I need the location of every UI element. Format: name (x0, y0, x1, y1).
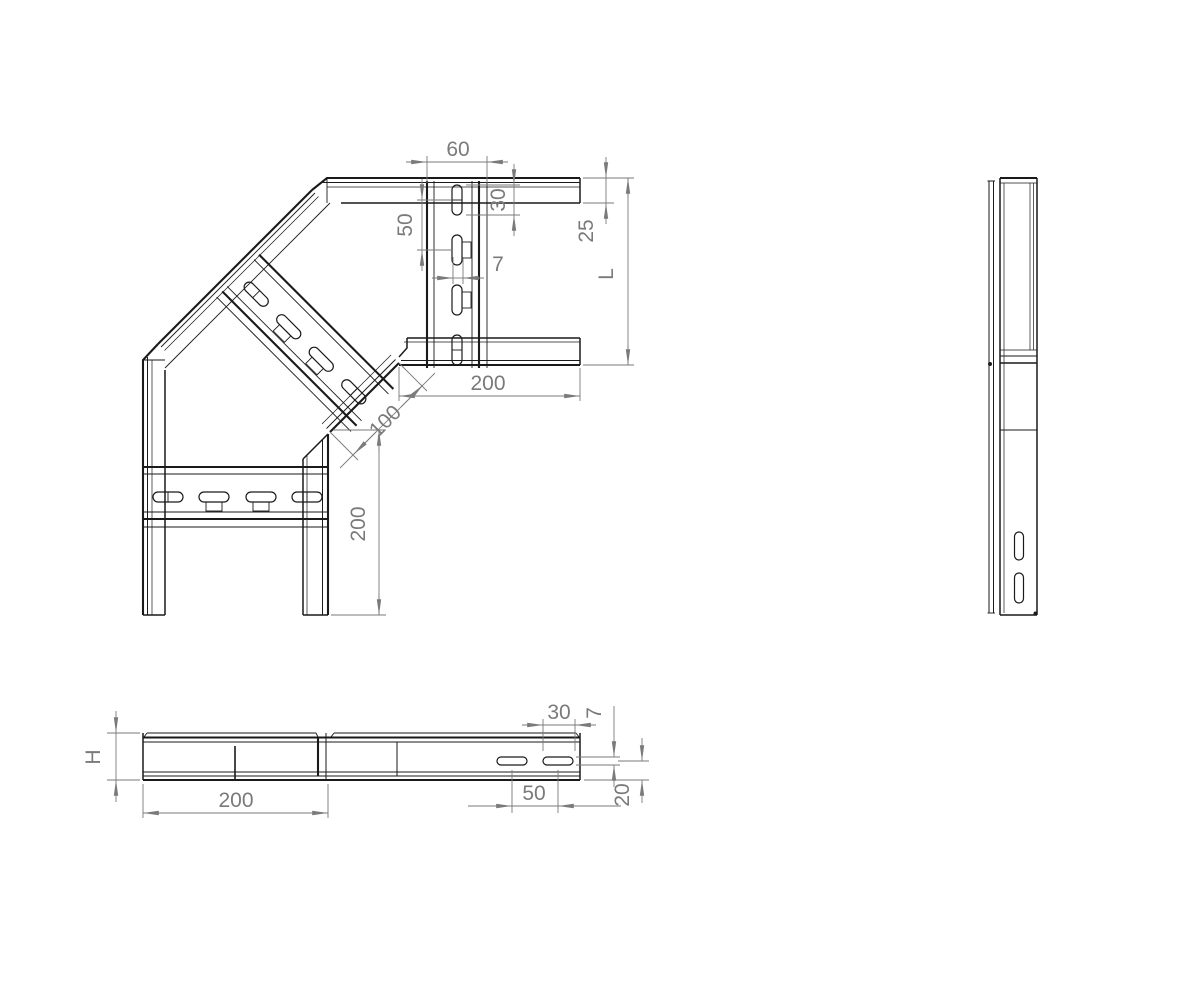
dim-200-arm-label: 200 (470, 372, 505, 395)
dim-50: 50 (394, 179, 452, 271)
dim-200-leg: 200 (331, 430, 386, 615)
plan-top-rail (312, 178, 580, 203)
plan-dimensions: 60 30 50 (330, 138, 634, 615)
front-view: H 200 30 (82, 701, 649, 818)
dim-50-front-label: 50 (522, 782, 545, 805)
rung-horizontal-arm (427, 181, 487, 368)
dim-200-arm: 200 (399, 367, 580, 401)
dim-7-front-label: 7 (583, 707, 606, 719)
front-slot-2 (543, 757, 573, 765)
dim-50-label: 50 (394, 213, 417, 236)
rung-diagonal (217, 255, 394, 432)
side-slot-2 (1015, 573, 1024, 603)
dim-60: 60 (406, 138, 508, 183)
plan-right-rail (303, 434, 328, 615)
cad-drawing: 60 30 50 (0, 0, 1200, 1000)
side-geometry (988, 178, 1038, 616)
dim-H: H (82, 711, 140, 802)
dim-7-label: 7 (492, 253, 504, 276)
dim-200-front-label: 200 (218, 789, 253, 812)
dim-7-front: 7 (576, 706, 620, 787)
front-slot-1 (497, 757, 527, 765)
plan-left-rail (143, 344, 165, 615)
dim-L-label: L (595, 268, 618, 280)
dim-25-label: 25 (575, 219, 598, 242)
dim-H-label: H (82, 749, 105, 764)
side-view (988, 178, 1038, 616)
dim-200-leg-label: 200 (347, 506, 370, 541)
dim-60-label: 60 (446, 138, 469, 161)
plan-outer-corner (158, 190, 330, 368)
dim-100-label: 100 (365, 401, 406, 442)
plan-view: 60 30 50 (143, 138, 634, 615)
dim-20-front: 20 (584, 738, 649, 807)
dim-30-front-label: 30 (547, 701, 570, 724)
front-geometry (143, 733, 580, 780)
rung-vertical-leg (143, 467, 328, 527)
dim-200-front: 200 (143, 784, 328, 818)
plan-geometry (143, 178, 580, 615)
dim-30: 30 (466, 164, 520, 236)
drawing-canvas: 60 30 50 (0, 0, 1200, 1000)
dim-20-front-label: 20 (611, 783, 634, 806)
dim-25: 25 (575, 157, 634, 243)
front-dimensions: H 200 30 (82, 701, 649, 818)
dim-L: L (583, 178, 634, 365)
dim-30-label: 30 (487, 188, 510, 211)
side-slot-1 (1015, 532, 1024, 560)
